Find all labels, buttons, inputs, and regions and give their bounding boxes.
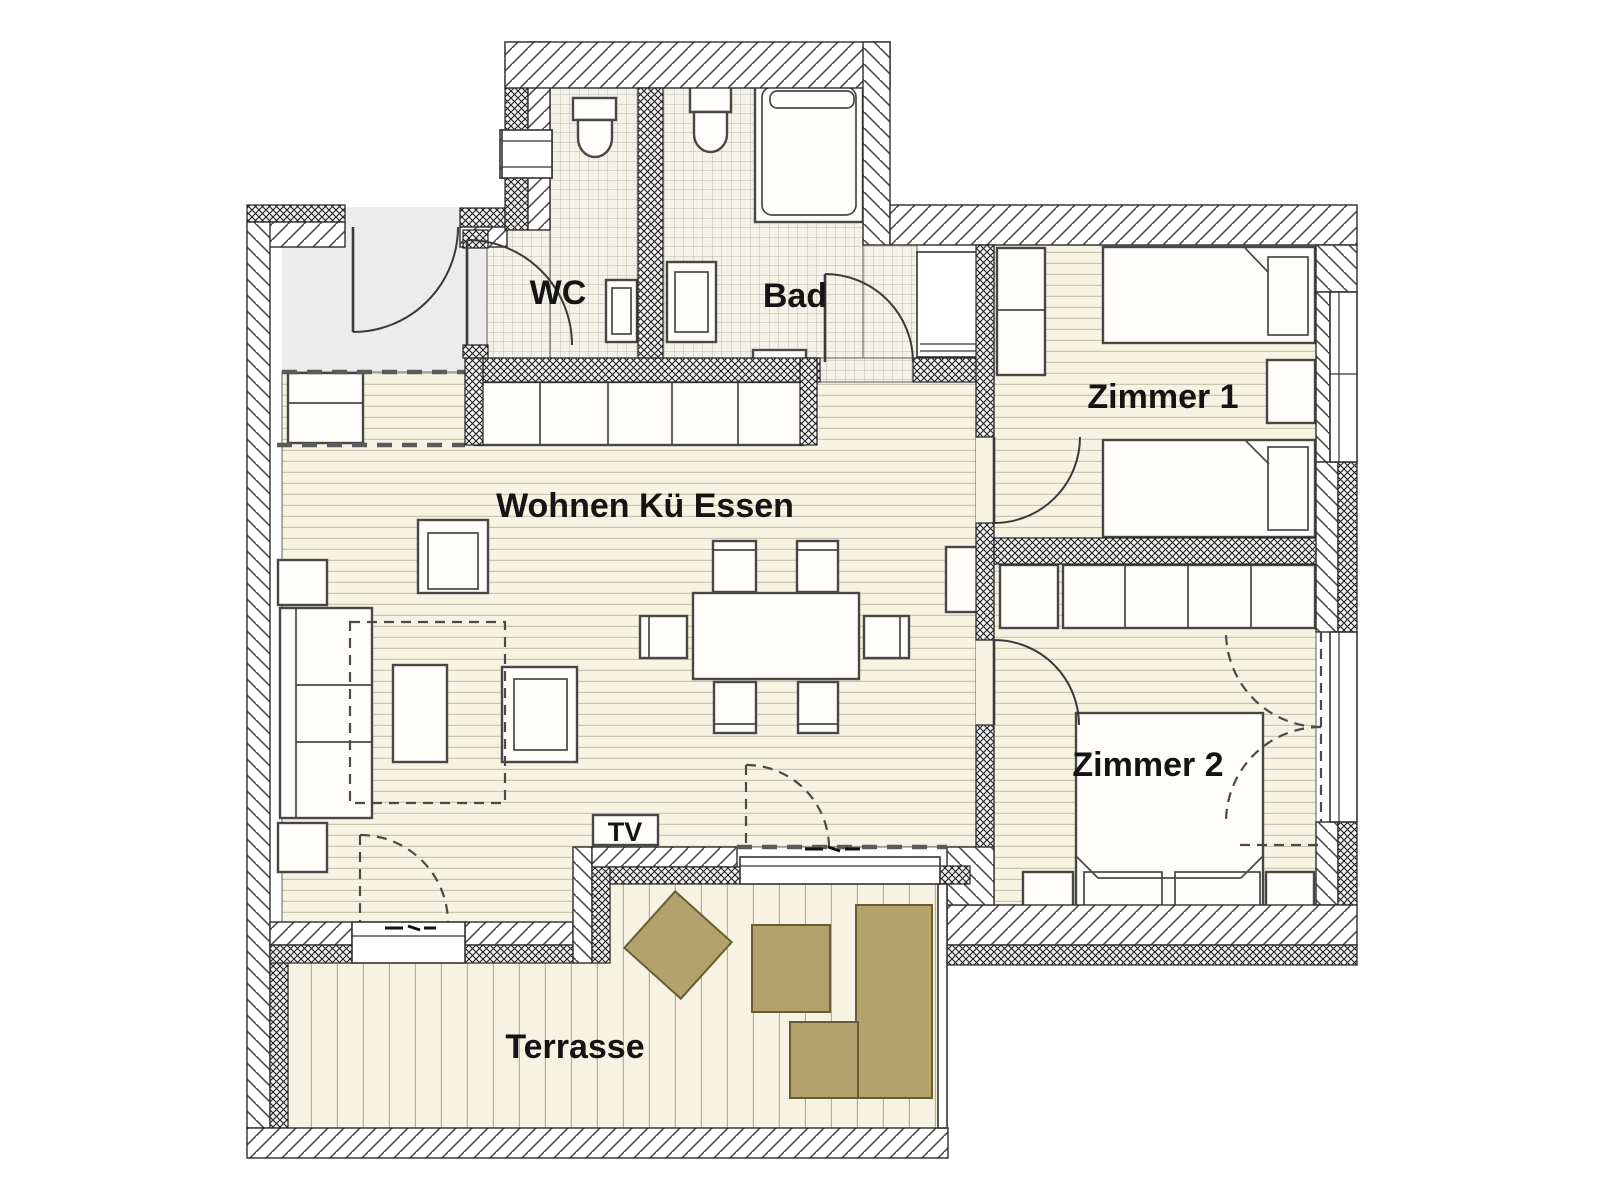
wall — [463, 345, 488, 358]
wardrobe — [997, 248, 1045, 375]
wc-sink — [606, 280, 637, 342]
shower — [917, 252, 980, 357]
wall-zimmer — [976, 245, 994, 437]
entry-floor — [282, 247, 465, 373]
wall-kitchen — [483, 358, 820, 382]
terrace-slider-sill — [740, 857, 940, 884]
zimmer1-door-gap — [976, 437, 994, 523]
single-bed — [1103, 440, 1315, 537]
wall — [863, 42, 890, 245]
wall-zimmer-divider — [994, 538, 1318, 564]
floor-plan: WC Bad Zimmer 1 Wohnen Kü Essen Zimmer 2… — [0, 0, 1600, 1200]
label-bad: Bad — [763, 277, 827, 315]
exterior-wall-top-right — [890, 205, 1357, 245]
wall-wc-bad — [638, 88, 663, 358]
wall — [460, 945, 573, 963]
label-zimmer1: Zimmer 1 — [1087, 378, 1238, 416]
wardrobe-cabinet — [1000, 565, 1058, 628]
wall — [460, 208, 505, 227]
nightstand — [1267, 360, 1315, 423]
side-table — [278, 560, 327, 605]
wall — [1316, 462, 1338, 632]
zimmer2-door-gap — [976, 640, 994, 725]
wall — [610, 867, 740, 884]
wall-zimmer — [976, 523, 994, 640]
tall-cabinet — [946, 547, 977, 612]
terrace-door-sill — [352, 922, 465, 963]
wall — [270, 945, 357, 963]
wall — [940, 866, 970, 884]
wall-step — [573, 847, 592, 963]
bathtub — [755, 80, 863, 222]
wall — [262, 222, 345, 247]
floor-plan-drawing: WC Bad Zimmer 1 Wohnen Kü Essen Zimmer 2… — [0, 0, 1600, 1200]
wall — [465, 922, 573, 945]
coffee-table — [393, 665, 447, 762]
zimmer1-window — [1330, 292, 1357, 462]
sofa — [280, 608, 372, 818]
wall — [947, 945, 1357, 965]
label-zimmer2: Zimmer 2 — [1072, 746, 1223, 784]
dining-chair — [713, 541, 756, 592]
terrace-stool — [752, 925, 830, 1012]
toilet-icon — [694, 112, 727, 152]
terrace-lounger — [856, 905, 932, 1098]
wall — [1316, 822, 1338, 905]
label-terrasse: Terrasse — [505, 1028, 644, 1066]
dining-table — [693, 593, 859, 679]
wall-step — [592, 847, 737, 867]
kitchen-counter — [475, 382, 803, 445]
toilet-cistern-icon — [573, 98, 616, 120]
wall-pilaster — [465, 358, 483, 445]
wall — [1338, 822, 1357, 905]
wall — [1338, 462, 1357, 632]
terrace-stool — [790, 1022, 858, 1098]
dimension-text-mark — [805, 847, 860, 851]
wall-pilaster — [800, 358, 817, 445]
label-tv: TV — [608, 817, 643, 847]
side-table — [278, 823, 327, 872]
bad-doorway-floor — [820, 358, 913, 382]
zimmer2-french-window — [1330, 632, 1357, 822]
exterior-wall-left — [247, 222, 270, 1128]
wall — [592, 867, 610, 963]
terrace-parapet — [247, 1128, 948, 1158]
label-wc: WC — [530, 274, 587, 312]
wall — [270, 943, 288, 1128]
bad-floor-extension — [863, 240, 917, 358]
exterior-wall-bottom-right — [947, 905, 1357, 945]
dining-chair — [798, 682, 838, 733]
entry-doorway-floor — [345, 207, 460, 247]
terrace-edge-wall — [938, 884, 947, 1128]
dining-chair — [714, 682, 756, 733]
label-wohnen: Wohnen Kü Essen — [496, 487, 794, 525]
wall — [247, 205, 345, 222]
dining-chair — [864, 616, 909, 658]
wall — [1316, 292, 1330, 462]
wc-window-opening — [502, 130, 552, 178]
double-bed — [1076, 713, 1263, 920]
wardrobe-row — [1063, 565, 1315, 628]
wall — [270, 922, 352, 945]
single-bed — [1103, 247, 1315, 343]
toilet-icon — [578, 120, 612, 157]
exterior-wall-right — [1316, 245, 1357, 292]
exterior-wall-top — [505, 42, 890, 88]
dining-chair — [640, 616, 687, 658]
dining-chair — [797, 541, 838, 592]
entry-sideboard — [288, 373, 363, 443]
